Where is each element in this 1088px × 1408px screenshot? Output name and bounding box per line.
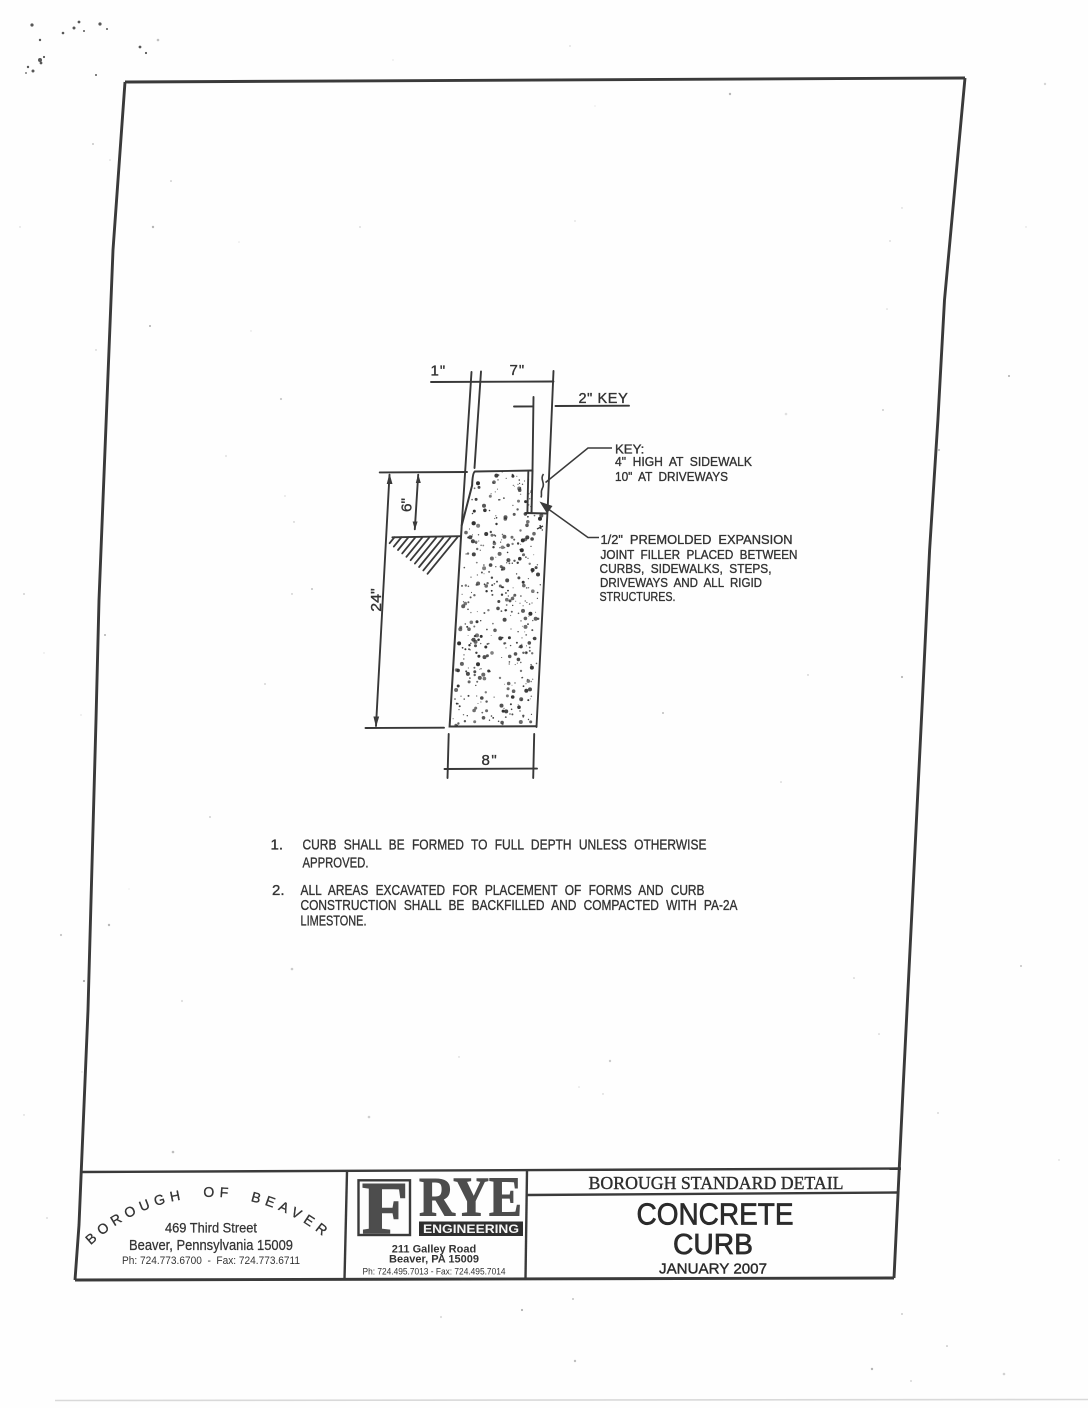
svg-text:8": 8" <box>482 752 499 769</box>
svg-text:CURB SHALL BE FORMED TO FULL D: CURB SHALL BE FORMED TO FULL DEPTH UNLES… <box>303 837 707 854</box>
svg-text:CURB: CURB <box>673 1229 753 1261</box>
svg-text:LIMESTONE.: LIMESTONE. <box>301 913 367 930</box>
svg-text:6": 6" <box>399 498 416 512</box>
svg-text:CONCRETE: CONCRETE <box>637 1197 794 1232</box>
svg-text:JANUARY 2007: JANUARY 2007 <box>659 1261 767 1278</box>
svg-text:F: F <box>362 1168 408 1250</box>
svg-text:RYE: RYE <box>419 1167 522 1229</box>
svg-text:2.: 2. <box>272 882 285 899</box>
svg-text:APPROVED.: APPROVED. <box>303 855 369 872</box>
svg-text:DRIVEWAYS AND ALL RIGID: DRIVEWAYS AND ALL RIGID <box>600 575 762 590</box>
svg-text:Beaver, PA 15009: Beaver, PA 15009 <box>389 1254 479 1266</box>
svg-text:Ph: 724.773.6700 - Fax: 724.: Ph: 724.773.6700 - Fax: 724.773.6711 <box>122 1255 300 1267</box>
svg-text:1/2" PREMOLDED EXPANSION: 1/2" PREMOLDED EXPANSION <box>601 532 793 547</box>
svg-text:469 Third Street: 469 Third Street <box>165 1220 257 1236</box>
svg-text:STRUCTURES.: STRUCTURES. <box>600 589 676 604</box>
svg-text:JOINT FILLER PLACED BETWEEN: JOINT FILLER PLACED BETWEEN <box>601 547 798 562</box>
svg-text:7": 7" <box>510 362 526 379</box>
svg-text:CURBS, SIDEWALKS, STEPS,: CURBS, SIDEWALKS, STEPS, <box>600 561 772 576</box>
svg-text:1.: 1. <box>271 837 284 854</box>
svg-text:24": 24" <box>368 588 385 612</box>
svg-text:Ph: 724.495.7013 - Fax: 724.49: Ph: 724.495.7013 - Fax: 724.495.7014 <box>363 1267 506 1278</box>
svg-text:CONSTRUCTION SHALL BE BACKFILL: CONSTRUCTION SHALL BE BACKFILLED AND COM… <box>301 897 738 914</box>
svg-text:10" AT DRIVEWAYS: 10" AT DRIVEWAYS <box>615 469 728 484</box>
svg-text:BOROUGH STANDARD DETAIL: BOROUGH STANDARD DETAIL <box>589 1173 844 1193</box>
svg-text:1": 1" <box>431 363 447 380</box>
svg-text:ENGINEERING: ENGINEERING <box>423 1224 519 1236</box>
svg-text:4" HIGH AT SIDEWALK: 4" HIGH AT SIDEWALK <box>615 454 752 469</box>
svg-text:2" KEY: 2" KEY <box>579 391 629 407</box>
svg-text:Beaver, Pennsylvania 15009: Beaver, Pennsylvania 15009 <box>129 1237 293 1254</box>
